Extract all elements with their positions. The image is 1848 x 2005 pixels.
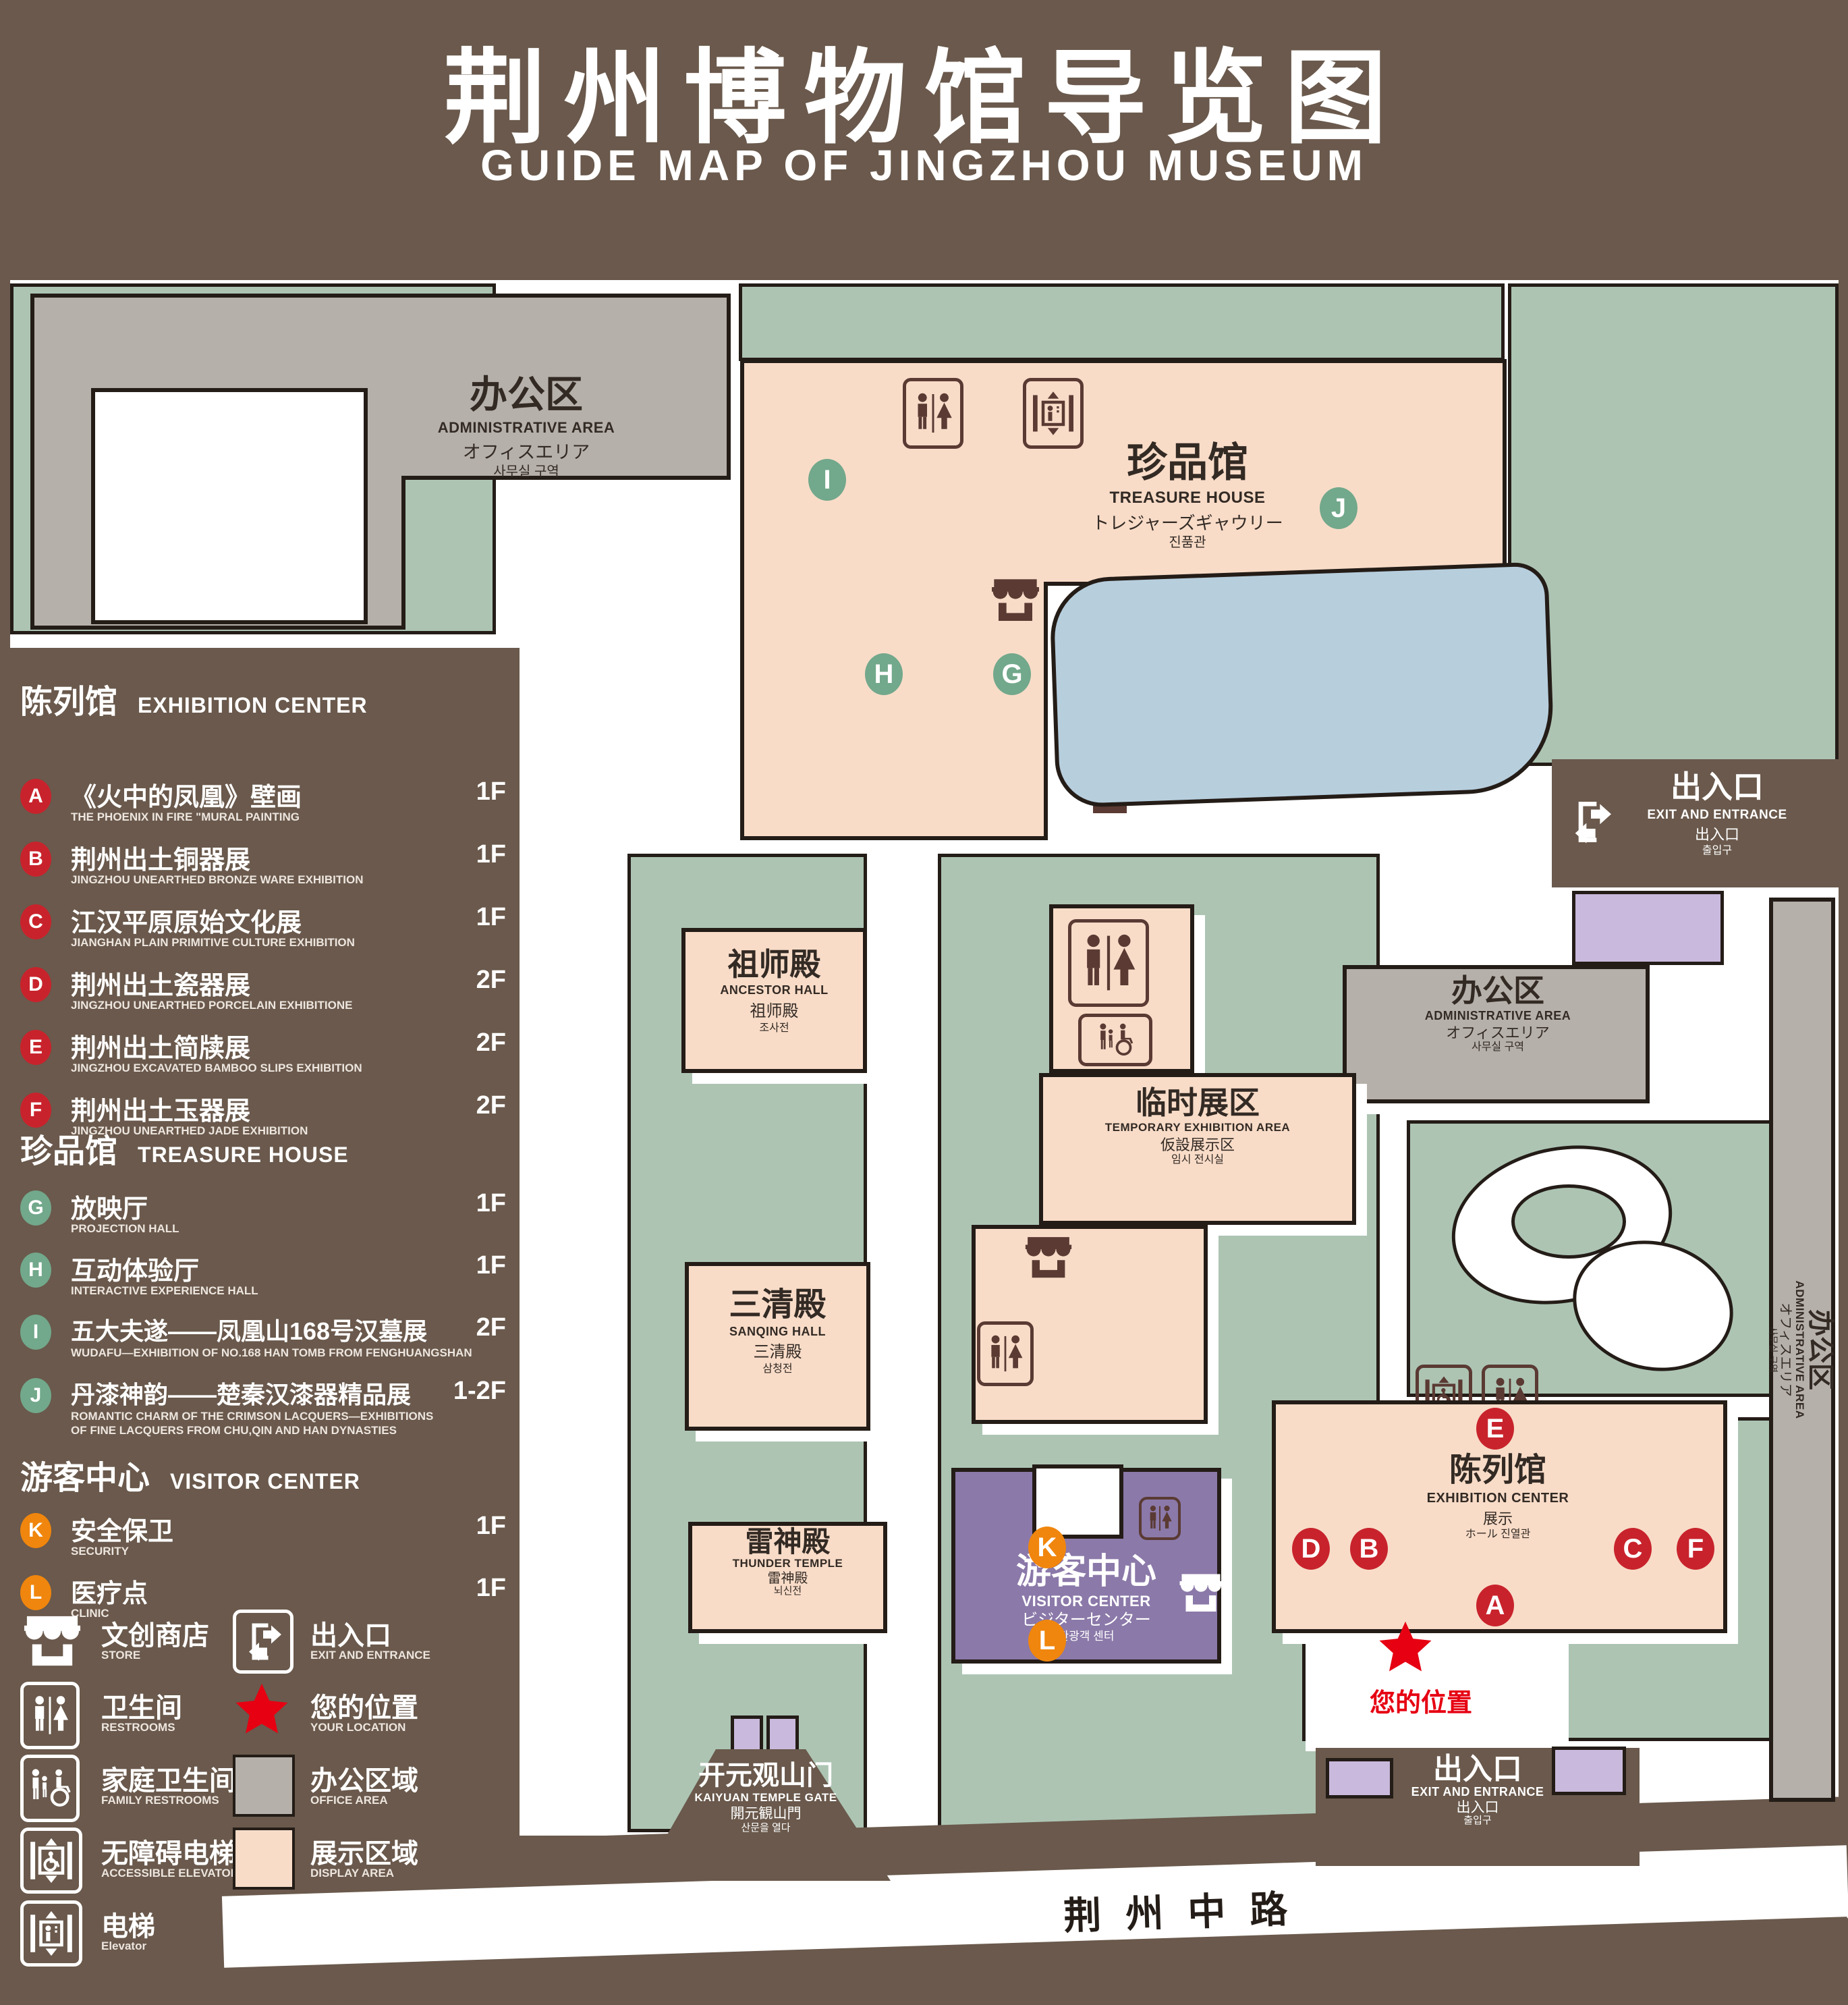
admin-mid-jp: オフィスエリア xyxy=(1349,1024,1646,1041)
legend-item-G: G 放映厅 PROJECTION HALL 1F xyxy=(20,1188,493,1250)
admin-mid-kr: 사무실 구역 xyxy=(1349,1041,1646,1053)
ancestor-jp: 祖师殿 xyxy=(685,1002,864,1022)
legend-item-J: J 丹漆神韵——楚秦汉漆器精品展 ROMANTIC CHARM OF THE C… xyxy=(20,1375,493,1456)
admin-courtyard xyxy=(91,388,368,624)
treasure-jp: トレジャーズギャウリー xyxy=(1042,512,1333,534)
exit-bottom-zh: 出入口 xyxy=(1400,1753,1555,1786)
legend-badge-J: J xyxy=(20,1378,51,1413)
admin-tl-jp: オフィスエリア xyxy=(398,441,654,464)
legend-exhibition-en: EXHIBITION CENTER xyxy=(138,693,368,718)
legend-icon-en: STORE xyxy=(101,1649,140,1662)
sanqing-en: SANQING HALL xyxy=(688,1325,867,1340)
thunder-zh: 雷神殿 xyxy=(692,1527,884,1558)
sanqing-zh: 三清殿 xyxy=(688,1286,867,1325)
restroom-icon xyxy=(20,1682,80,1749)
legend-item-floor: 2F xyxy=(418,1028,506,1058)
legend-badge-C: C xyxy=(20,904,51,939)
thunder-jp: 雷神殿 xyxy=(692,1571,884,1586)
ancestor-kr: 조사전 xyxy=(685,1022,864,1035)
legend-badge-L: L xyxy=(20,1575,51,1610)
legend-item-K: K 安全保卫 SECURITY 1F xyxy=(20,1510,493,1572)
legend-item-en: PROJECTION HALL xyxy=(71,1221,476,1236)
visitor-kr: 관광객 센터 xyxy=(965,1630,1208,1643)
sanqing-jp: 三清殿 xyxy=(688,1343,867,1363)
marker-J: J xyxy=(1320,487,1357,529)
display-area-swatch xyxy=(233,1828,295,1890)
your-location-label: 您的位置 xyxy=(1370,1682,1472,1719)
legend-item-en: ROMANTIC CHARM OF THE CRIMSON LACQUERS—E… xyxy=(71,1409,449,1438)
pond xyxy=(1048,561,1555,808)
office-area-swatch xyxy=(233,1755,295,1817)
guide-map-sign: 荆州博物馆导览图 GUIDE MAP OF JINGZHOU MUSEUM 荆州… xyxy=(0,0,1848,1976)
legend-badge-I: I xyxy=(20,1315,51,1350)
restroom-icon xyxy=(903,378,963,449)
legend-icon-en: OFFICE AREA xyxy=(310,1794,388,1807)
legend-item-I: I 五大夫遂——凤凰山168号汉墓展 WUDAFU—EXHIBITION OF … xyxy=(20,1312,493,1374)
admin-strip-en: ADMINISTRATIVE AREA xyxy=(1793,911,1805,1788)
admin-tl-kr: 사무실 구역 xyxy=(398,464,654,480)
legend-icon-zh: 出入口 xyxy=(310,1614,391,1653)
legend-icon-zh: 无障碍电梯 xyxy=(101,1832,236,1871)
exit-bottom-kr: 출입구 xyxy=(1400,1815,1555,1827)
treasure-zh: 珍品馆 xyxy=(1042,437,1333,488)
exit-top-label-kr: 출입구 xyxy=(1619,844,1815,858)
marker-D: D xyxy=(1292,1528,1330,1570)
legend-icon-en: FAMILY RESTROOMS xyxy=(101,1794,219,1807)
exit-top-label-zh: 出入口 xyxy=(1619,768,1815,807)
exhibition-l4: ホール 진열관 xyxy=(1370,1528,1626,1541)
legend-badge-K: K xyxy=(20,1513,51,1548)
legend-badge-A: A xyxy=(20,779,51,814)
treasure-en: TREASURE HOUSE xyxy=(1042,488,1333,508)
restroom-icon xyxy=(977,1321,1034,1386)
legend-item-zh: 荆州出土玉器展 xyxy=(71,1090,250,1127)
exhibition-zh: 陈列馆 xyxy=(1370,1451,1626,1490)
purple-building-top-right xyxy=(1572,891,1724,965)
admin-strip-jp: オフィスエリア xyxy=(1778,911,1793,1788)
tempex-kr: 임시 전시실 xyxy=(1046,1154,1349,1166)
admin-strip-zh: 办公区 xyxy=(1805,911,1835,1788)
tempex-jp: 仮設展示区 xyxy=(1046,1136,1349,1153)
your-location-star-icon xyxy=(233,1682,291,1740)
legend-item-floor: 1F xyxy=(418,1189,506,1218)
legend-badge-E: E xyxy=(20,1030,51,1065)
gate-kr: 산문을 열다 xyxy=(648,1822,884,1834)
purple-building-bottom xyxy=(1552,1747,1626,1795)
visitor-jp: ビジターセンター xyxy=(965,1611,1208,1630)
legend-icon-zh: 卫生间 xyxy=(101,1686,182,1725)
legend-badge-G: G xyxy=(20,1190,51,1226)
legend-section-treasure: 珍品馆 TREASURE HOUSE xyxy=(20,1124,349,1172)
exit-icon xyxy=(1564,795,1618,849)
marker-H: H xyxy=(865,653,903,695)
store-icon xyxy=(985,574,1046,628)
legend-badge-H: H xyxy=(20,1253,51,1288)
gate-pillar xyxy=(766,1715,799,1755)
marker-A: A xyxy=(1476,1585,1514,1626)
legend-badge-F: F xyxy=(20,1093,51,1128)
legend-badge-D: D xyxy=(20,967,51,1002)
admin-tl-en: ADMINISTRATIVE AREA xyxy=(398,418,654,437)
legend-item-floor: 2F xyxy=(418,966,506,995)
legend-item-en: JINGZHOU UNEARTHED PORCELAIN EXHIBITIONE xyxy=(71,998,476,1012)
legend-icon-store: 文创商店 STORE xyxy=(20,1610,223,1677)
page-subtitle: GUIDE MAP OF JINGZHOU MUSEUM xyxy=(0,140,1848,190)
legend-item-zh: 医疗点 xyxy=(71,1572,148,1610)
legend-icon-accessible-elevator: 无障碍电梯 ACCESSIBLE ELEVATOR xyxy=(20,1828,223,1895)
legend-icon-zh: 展示区域 xyxy=(310,1832,418,1871)
treasure-kr: 진품관 xyxy=(1042,534,1333,551)
legend-icon-en: YOUR LOCATION xyxy=(310,1721,405,1734)
legend-item-zh: 《火中的凤凰》壁画 xyxy=(71,776,302,813)
admin-mid-en: ADMINISTRATIVE AREA xyxy=(1349,1009,1646,1023)
elevator-icon xyxy=(20,1900,82,1967)
legend-icon-zh: 电梯 xyxy=(101,1904,155,1944)
legend-item-H: H 互动体验厅 INTERACTIVE EXPERIENCE HALL 1F xyxy=(20,1250,493,1312)
purple-building-bottom xyxy=(1326,1758,1393,1798)
legend-visitor-en: VISITOR CENTER xyxy=(170,1469,360,1494)
legend-item-D: D 荆州出土瓷器展 JINGZHOU UNEARTHED PORCELAIN E… xyxy=(20,964,493,1026)
legend-item-zh: 放映厅 xyxy=(71,1188,148,1225)
legend-treasure-en: TREASURE HOUSE xyxy=(138,1143,349,1168)
legend-item-en: WUDAFU—EXHIBITION OF NO.168 HAN TOMB FRO… xyxy=(71,1346,476,1360)
legend-item-zh: 荆州出土铜器展 xyxy=(71,839,250,876)
legend-icon-zh: 文创商店 xyxy=(101,1614,209,1653)
family-restroom-icon xyxy=(20,1755,80,1822)
legend-item-en: THE PHOENIX IN FIRE "MURAL PAINTING xyxy=(71,810,476,824)
legend-icon-exit: 出入口 EXIT AND ENTRANCE xyxy=(233,1610,489,1677)
legend-item-floor: 2F xyxy=(418,1091,506,1120)
legend-item-floor: 1F xyxy=(418,777,506,806)
marker-G: G xyxy=(993,653,1031,695)
legend-icon-en: EXIT AND ENTRANCE xyxy=(310,1649,430,1662)
legend-icon-en: ACCESSIBLE ELEVATOR xyxy=(101,1867,239,1880)
legend-icon-zh: 家庭卫生间 xyxy=(101,1759,236,1798)
legend-item-en: JINGZHOU UNEARTHED BRONZE WARE EXHIBITIO… xyxy=(71,873,476,887)
family-restroom-icon xyxy=(1078,1014,1152,1066)
garden-island xyxy=(1511,1184,1626,1259)
marker-F: F xyxy=(1677,1528,1714,1570)
legend-item-A: A 《火中的凤凰》壁画 THE PHOENIX IN FIRE "MURAL P… xyxy=(20,776,493,838)
legend-item-zh: 五大夫遂——凤凰山168号汉墓展 xyxy=(71,1312,427,1347)
legend-item-en: INTERACTIVE EXPERIENCE HALL xyxy=(71,1284,476,1298)
legend-item-C: C 江汉平原原始文化展 JIANGHAN PLAIN PRIMITIVE CUL… xyxy=(20,902,493,964)
exhibition-l3: 展示 xyxy=(1370,1510,1626,1528)
legend-item-en: JINGZHOU EXCAVATED BAMBOO SLIPS EXHIBITI… xyxy=(71,1061,476,1075)
legend-icon-en: RESTROOMS xyxy=(101,1721,175,1734)
store-icon xyxy=(1019,1232,1078,1284)
ancestor-en: ANCESTOR HALL xyxy=(685,983,864,998)
your-location-star-icon xyxy=(1375,1620,1436,1678)
admin-tl-zh: 办公区 xyxy=(398,371,654,418)
tempex-en: TEMPORARY EXHIBITION AREA xyxy=(1046,1121,1349,1134)
legend-item-en: JIANGHAN PLAIN PRIMITIVE CULTURE EXHIBIT… xyxy=(71,935,476,950)
legend-icon-zh: 您的位置 xyxy=(310,1686,418,1725)
marker-I: I xyxy=(808,459,846,501)
legend-icon-en: Elevator xyxy=(101,1940,146,1953)
ancestor-zh: 祖师殿 xyxy=(685,946,864,983)
legend-section-visitor: 游客中心 VISITOR CENTER xyxy=(20,1451,360,1498)
legend-exhibition-zh: 陈列馆 xyxy=(20,675,117,722)
accessible-elevator-icon xyxy=(20,1828,82,1894)
legend-item-zh: 荆州出土简牍展 xyxy=(71,1027,250,1064)
legend-icon-family-restrooms: 家庭卫生间 FAMILY RESTROOMS xyxy=(20,1755,223,1822)
legend-item-zh: 江汉平原原始文化展 xyxy=(71,902,302,939)
legend-icon-elevator: 电梯 Elevator xyxy=(20,1900,223,1968)
legend-item-floor: 1F xyxy=(418,903,506,932)
admin-strip-kr: 사무실 구역 xyxy=(1768,911,1778,1788)
admin-mid-zh: 办公区 xyxy=(1349,973,1646,1009)
legend-icon-display-area: 展示区域 DISPLAY AREA xyxy=(233,1828,489,1895)
visitor-en: VISITOR CENTER xyxy=(965,1593,1208,1610)
store-icon xyxy=(1174,1569,1228,1618)
exit-bottom-en: EXIT AND ENTRANCE xyxy=(1400,1786,1555,1799)
exit-top-label-jp: 出入口 xyxy=(1619,825,1815,844)
legend-item-B: B 荆州出土铜器展 JINGZHOU UNEARTHED BRONZE WARE… xyxy=(20,839,493,901)
legend-item-floor: 2F xyxy=(418,1313,506,1342)
legend-item-zh: 丹漆神韵——楚秦汉漆器精品展 xyxy=(71,1375,411,1410)
marker-K: K xyxy=(1028,1527,1066,1568)
legend-section-exhibition: 陈列馆 EXHIBITION CENTER xyxy=(20,675,368,722)
visitor-zh: 游客中心 xyxy=(965,1552,1208,1593)
legend-icon-zh: 办公区域 xyxy=(310,1759,418,1798)
tempex-zh: 临时展区 xyxy=(1046,1085,1349,1121)
legend-visitor-zh: 游客中心 xyxy=(20,1451,150,1498)
legend-icon-office-area: 办公区域 OFFICE AREA xyxy=(233,1755,489,1822)
restroom-icon xyxy=(1068,919,1149,1007)
thunder-kr: 뇌신전 xyxy=(692,1586,884,1597)
legend-icon-restrooms: 卫生间 RESTROOMS xyxy=(20,1682,223,1749)
legend-item-floor: 1F xyxy=(418,840,506,869)
store-icon xyxy=(20,1610,84,1674)
legend-icon-your-location: 您的位置 YOUR LOCATION xyxy=(233,1682,489,1749)
gate-en: KAIYUAN TEMPLE GATE xyxy=(648,1791,884,1805)
gate-pillar xyxy=(731,1715,763,1755)
legend-item-E: E 荆州出土简牍展 JINGZHOU EXCAVATED BAMBOO SLIP… xyxy=(20,1027,493,1089)
marker-B: B xyxy=(1350,1528,1388,1570)
legend-item-floor: 1F xyxy=(418,1251,506,1280)
exhibition-en: EXHIBITION CENTER xyxy=(1370,1490,1626,1506)
legend-badge-B: B xyxy=(20,842,51,877)
green-area-top-right xyxy=(1508,283,1839,766)
marker-C: C xyxy=(1614,1528,1652,1570)
legend-item-floor: 1-2F xyxy=(418,1377,506,1406)
legend-item-floor: 1F xyxy=(418,1512,506,1541)
legend-item-en: SECURITY xyxy=(71,1544,476,1558)
exit-bottom-jp: 出入口 xyxy=(1400,1800,1555,1815)
legend-item-zh: 安全保卫 xyxy=(71,1510,173,1547)
thunder-en: THUNDER TEMPLE xyxy=(692,1558,884,1570)
legend-icon-en: DISPLAY AREA xyxy=(310,1867,394,1880)
gate-jp: 開元観山門 xyxy=(648,1806,884,1822)
gate-zh: 开元观山门 xyxy=(648,1760,884,1791)
legend-treasure-zh: 珍品馆 xyxy=(20,1124,117,1172)
marker-E: E xyxy=(1476,1408,1514,1450)
legend-item-zh: 荆州出土瓷器展 xyxy=(71,964,250,1001)
exit-icon xyxy=(233,1610,293,1674)
marker-L: L xyxy=(1028,1620,1066,1661)
restroom-icon xyxy=(1139,1497,1181,1540)
sanqing-kr: 삼청전 xyxy=(688,1363,867,1375)
exit-top-label-en: EXIT AND ENTRANCE xyxy=(1619,807,1815,823)
legend-item-zh: 互动体验厅 xyxy=(71,1250,199,1287)
green-band-top xyxy=(739,283,1505,361)
legend-item-floor: 1F xyxy=(418,1574,506,1603)
